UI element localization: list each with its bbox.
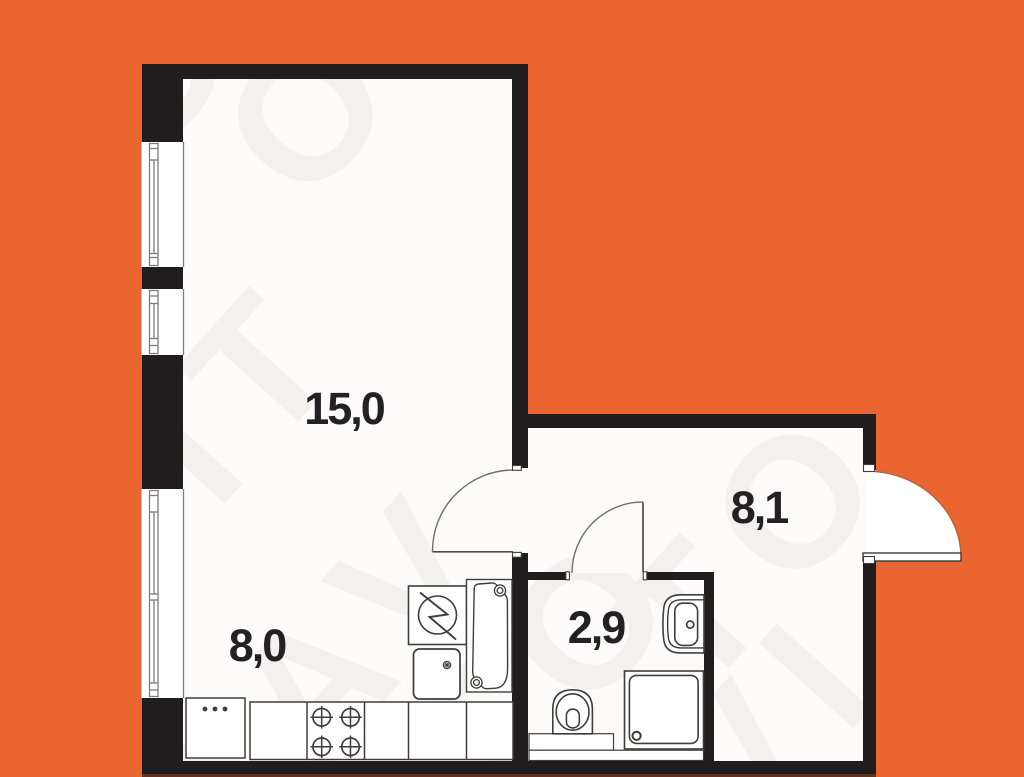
svg-text:2,9: 2,9 [568, 602, 626, 653]
svg-text:8,1: 8,1 [731, 482, 789, 533]
svg-text:15,0: 15,0 [304, 383, 385, 434]
svg-text:8,0: 8,0 [229, 620, 287, 671]
